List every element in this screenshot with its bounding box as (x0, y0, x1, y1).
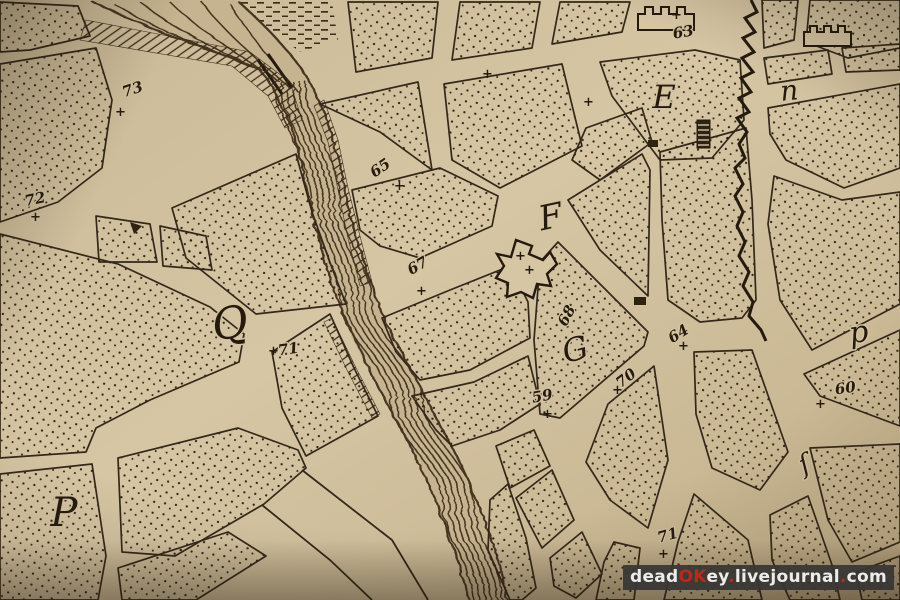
antique-map-photo: + + + + + + + + + + + + + + + Q P F E G … (0, 0, 900, 600)
district-letter-label: P (50, 490, 79, 536)
city-block (96, 216, 157, 262)
map-canvas: + + + + + + + + + + + + + + + Q P F E G … (0, 0, 900, 600)
district-letter-label: n (779, 73, 800, 107)
small-building (648, 140, 658, 147)
watermark-text: . (840, 567, 847, 587)
cross-mark: + (394, 179, 405, 194)
parcel-number-label: 63 (671, 21, 695, 42)
district-letter-label: Q (209, 296, 252, 352)
parcel-number-label: 71 (277, 339, 300, 360)
watermark-text: livejournal (735, 567, 840, 587)
watermark-text: com (847, 567, 887, 587)
cross-mark: + (671, 8, 682, 23)
cross-mark: + (30, 210, 41, 225)
cross-mark: + (658, 547, 669, 562)
battlement (804, 26, 851, 46)
cross-mark: + (583, 95, 594, 110)
parcel-number-label: 59 (530, 385, 554, 406)
watermark-text: dead (630, 567, 679, 587)
city-block (762, 0, 798, 48)
watermark-text: OK (679, 567, 707, 587)
watermark-text: ey (706, 567, 728, 587)
cross-mark: + (115, 105, 126, 120)
cross-mark: + (482, 67, 493, 82)
cross-mark: + (815, 397, 826, 412)
district-letter-label: E (651, 78, 675, 116)
watermark: deadOKey.livejournal.com (623, 565, 894, 590)
parcel-number-label: 60 (834, 378, 858, 399)
cross-mark: + (416, 284, 427, 299)
small-building (634, 297, 646, 305)
city-block (660, 128, 756, 322)
ladder-building (697, 120, 710, 148)
cross-mark: + (542, 407, 553, 422)
city-block (842, 44, 900, 72)
watermark-text: . (728, 567, 735, 587)
cross-mark: + (515, 249, 526, 264)
cross-mark: + (524, 263, 535, 278)
